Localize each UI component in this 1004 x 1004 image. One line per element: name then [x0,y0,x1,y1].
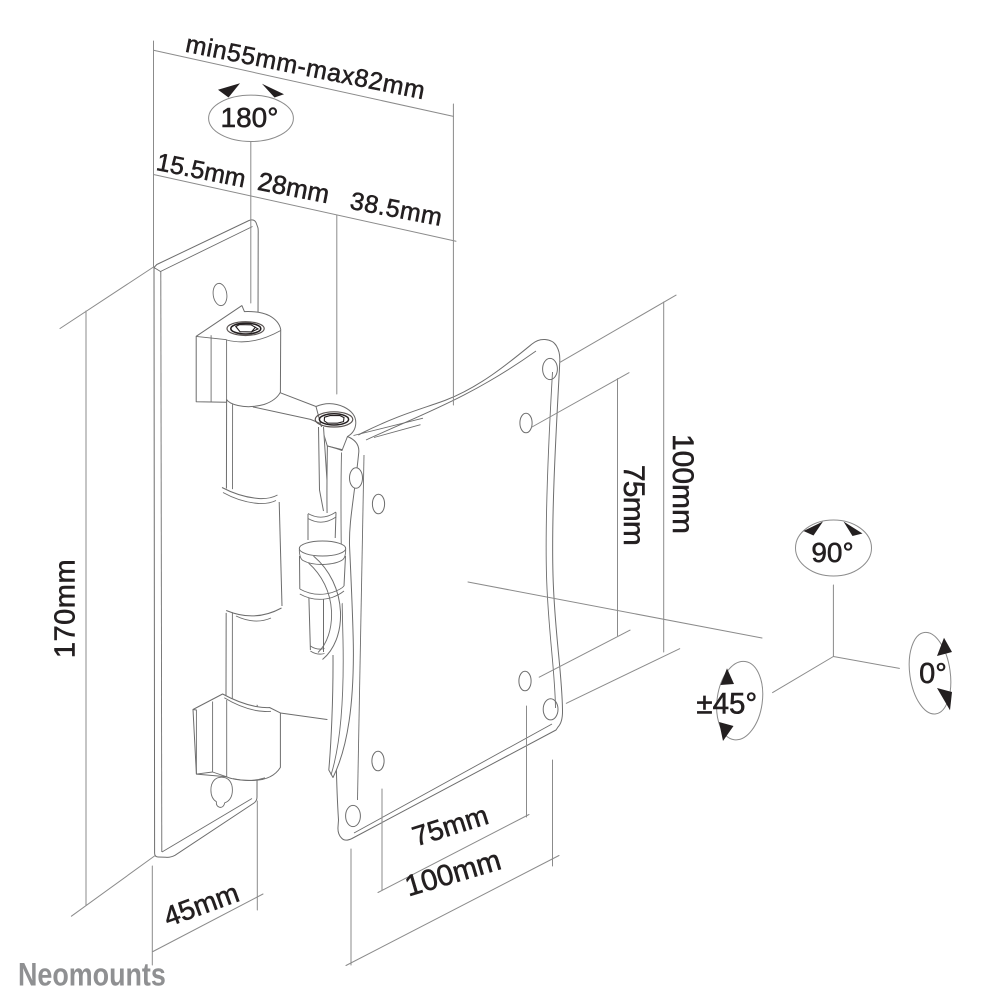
svg-text:170mm: 170mm [50,559,82,658]
svg-text:Neomounts: Neomounts [18,957,166,993]
svg-text:75mm: 75mm [617,465,650,545]
svg-text:180°: 180° [221,102,279,133]
svg-text:0°: 0° [919,658,947,690]
svg-text:±45°: ±45° [696,688,757,721]
svg-text:90°: 90° [811,537,853,568]
svg-text:100mm: 100mm [666,434,699,534]
